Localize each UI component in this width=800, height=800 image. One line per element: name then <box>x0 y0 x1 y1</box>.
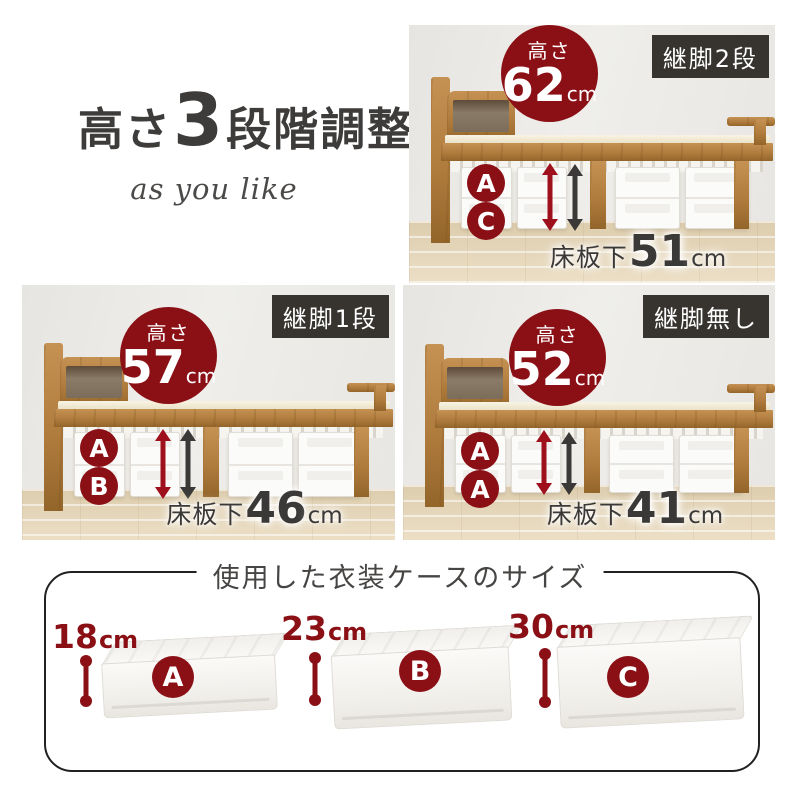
height-bubble-value: 52cm <box>510 346 606 392</box>
measure-shaft <box>543 653 548 703</box>
case-a-measure-line <box>80 655 92 707</box>
case-a-label-circle: A <box>152 656 194 698</box>
drawer <box>299 433 362 466</box>
footboard-post <box>754 386 766 412</box>
height-bubble-value: 62cm <box>502 62 598 108</box>
drawer <box>616 168 679 199</box>
footboard-rail <box>727 117 775 126</box>
case-b-measure-line <box>309 652 321 706</box>
case-front <box>557 637 745 729</box>
title-number: 3 <box>173 84 225 156</box>
clearance-caption: 床板下41cm <box>403 487 775 531</box>
clearance-arrow-icon <box>535 430 552 495</box>
title-prefix: 高さ <box>78 93 172 158</box>
headboard-shelf-interior <box>66 366 122 398</box>
case-stack-arrow-icon <box>560 432 577 495</box>
panel-riser-none: A A 高さ 52cm 継脚無し 床板下41cm <box>403 285 775 540</box>
arrow-shaft <box>160 438 165 490</box>
main-title: 高さ3段階調整 as you like <box>78 84 358 206</box>
bed-side-rail <box>54 409 393 427</box>
case-a-height-label: 18cm <box>52 620 138 654</box>
case-b-label-circle: B <box>399 650 441 692</box>
drawer <box>616 199 679 228</box>
footboard-post <box>754 119 766 145</box>
clearance-caption: 床板下46cm <box>22 487 395 531</box>
headboard-shelf-interior <box>447 367 503 399</box>
arrow-shaft <box>566 441 571 486</box>
clearance-caption: 床板下51cm <box>409 230 775 274</box>
case-c-measure-line <box>539 648 551 708</box>
measure-shaft <box>313 657 318 701</box>
height-bubble: 高さ 52cm <box>509 309 606 406</box>
underbed-drawer-group-right <box>615 167 749 229</box>
arrow-shaft <box>572 173 577 222</box>
product-infographic: { "title": { "prefix": "高さ", "number": "… <box>0 0 800 800</box>
footboard-post <box>374 385 386 411</box>
height-bubble: 高さ 57cm <box>120 307 217 404</box>
arrow-shaft <box>547 172 552 222</box>
case-c-height-label: 30cm <box>508 610 594 644</box>
bed-leg-center <box>590 161 606 229</box>
case-label-circle: A <box>461 432 499 470</box>
case-stack-arrow-icon <box>566 164 583 231</box>
headboard-shelf-interior <box>453 100 509 132</box>
title-suffix: 段階調整 <box>226 93 414 158</box>
height-bubble-value: 57cm <box>121 344 217 390</box>
riser-badge: 継脚無し <box>643 295 769 338</box>
title-subtitle-script: as you like <box>78 172 350 206</box>
arrow-shaft <box>541 439 546 486</box>
drawer <box>229 433 292 466</box>
height-bubble: 高さ 62cm <box>501 25 598 122</box>
case-label-circle: A <box>467 164 505 202</box>
bed-side-rail <box>441 143 773 161</box>
panel-riser-2steps: A C 高さ 62cm 継脚2段 床板下51cm <box>409 25 775 283</box>
panel-riser-1step: A B 高さ 57cm 継脚1段 床板下46cm <box>22 285 395 540</box>
drawer-box <box>615 167 680 229</box>
footboard-rail <box>727 384 775 393</box>
cases-section-title: 使用した衣装ケースのサイズ <box>197 556 604 595</box>
bed-leg-center <box>584 428 600 493</box>
riser-badge: 継脚1段 <box>272 295 389 338</box>
case-c-label-circle: C <box>607 656 649 698</box>
bed-leg-right <box>734 161 749 229</box>
drawer <box>680 436 743 465</box>
arrow-shaft <box>185 438 190 490</box>
measure-shaft <box>84 660 89 702</box>
bed-leg-right <box>734 428 749 493</box>
clearance-arrow-icon <box>541 163 558 231</box>
footboard-rail <box>347 383 395 392</box>
riser-badge: 継脚2段 <box>652 35 769 78</box>
drawer <box>610 436 673 465</box>
bed-side-rail <box>435 410 773 428</box>
case-label-circle: A <box>80 429 118 467</box>
title-line: 高さ3段階調整 <box>78 84 358 158</box>
case-b-height-label: 23cm <box>281 612 367 646</box>
